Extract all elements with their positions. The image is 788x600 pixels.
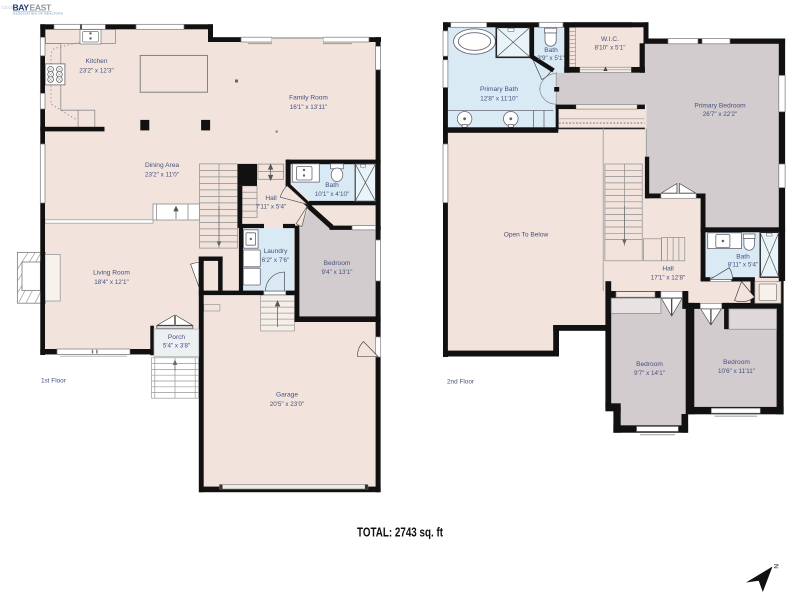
svg-text:Laundry: Laundry [264, 248, 289, 255]
svg-text:23'2" x 12'3": 23'2" x 12'3" [79, 68, 114, 75]
svg-text:9'4" x 13'1": 9'4" x 13'1" [321, 269, 352, 276]
svg-text:Kitchen: Kitchen [86, 58, 108, 65]
svg-text:18'4" x 12'1": 18'4" x 12'1" [94, 279, 129, 286]
svg-text:Hall: Hall [662, 266, 674, 273]
svg-text:Bedroom: Bedroom [324, 260, 351, 267]
svg-text:12'8" x 11'10": 12'8" x 11'10" [480, 96, 518, 103]
svg-text:10'1" x 4'10": 10'1" x 4'10" [315, 191, 350, 198]
svg-text:10'6" x 11'11": 10'6" x 11'11" [718, 368, 755, 375]
svg-text:Bedroom: Bedroom [723, 359, 750, 366]
svg-text:1st Floor: 1st Floor [41, 378, 67, 385]
svg-text:2nd Floor: 2nd Floor [447, 379, 475, 386]
svg-text:Open To Below: Open To Below [504, 232, 549, 239]
svg-text:Primary Bedroom: Primary Bedroom [694, 103, 746, 110]
svg-text:Porch: Porch [168, 334, 186, 341]
svg-text:20'5" x 23'0": 20'5" x 23'0" [270, 401, 305, 408]
svg-text:Dining Area: Dining Area [145, 162, 179, 169]
svg-text:17'1" x 12'8": 17'1" x 12'8" [651, 275, 686, 282]
svg-text:6'2" x 7'6": 6'2" x 7'6" [262, 257, 290, 264]
svg-text:Garage: Garage [276, 392, 298, 399]
svg-text:Living Room: Living Room [93, 270, 130, 277]
svg-text:26'7" x 22'2": 26'7" x 22'2" [703, 111, 738, 118]
svg-text:Bath: Bath [325, 182, 339, 189]
svg-text:3'9" x 5'1": 3'9" x 5'1" [537, 55, 565, 62]
svg-text:5'4" x 3'8": 5'4" x 3'8" [163, 343, 191, 350]
svg-text:16'1" x 13'11": 16'1" x 13'11" [290, 104, 328, 111]
svg-text:N: N [772, 564, 779, 569]
svg-text:Family Room: Family Room [289, 95, 328, 102]
svg-text:W.I.C.: W.I.C. [601, 36, 619, 43]
svg-text:Bath: Bath [544, 47, 558, 54]
svg-text:7'11" x 5'4": 7'11" x 5'4" [256, 204, 287, 211]
svg-text:23'2" x 11'0": 23'2" x 11'0" [145, 172, 179, 179]
svg-text:Bath: Bath [736, 254, 750, 261]
svg-text:9'7" x 14'1": 9'7" x 14'1" [634, 370, 665, 377]
svg-text:Hall: Hall [265, 195, 277, 202]
svg-text:8'11" x 5'4": 8'11" x 5'4" [728, 262, 759, 269]
svg-text:Primary Bath: Primary Bath [480, 86, 518, 93]
svg-text:8'10" x 5'1": 8'10" x 5'1" [594, 45, 625, 52]
svg-text:TOTAL: 2743 sq. ft: TOTAL: 2743 sq. ft [357, 525, 444, 540]
svg-text:ASSOCIATION OF REALTORS: ASSOCIATION OF REALTORS [13, 11, 63, 15]
svg-text:Bedroom: Bedroom [636, 361, 663, 368]
